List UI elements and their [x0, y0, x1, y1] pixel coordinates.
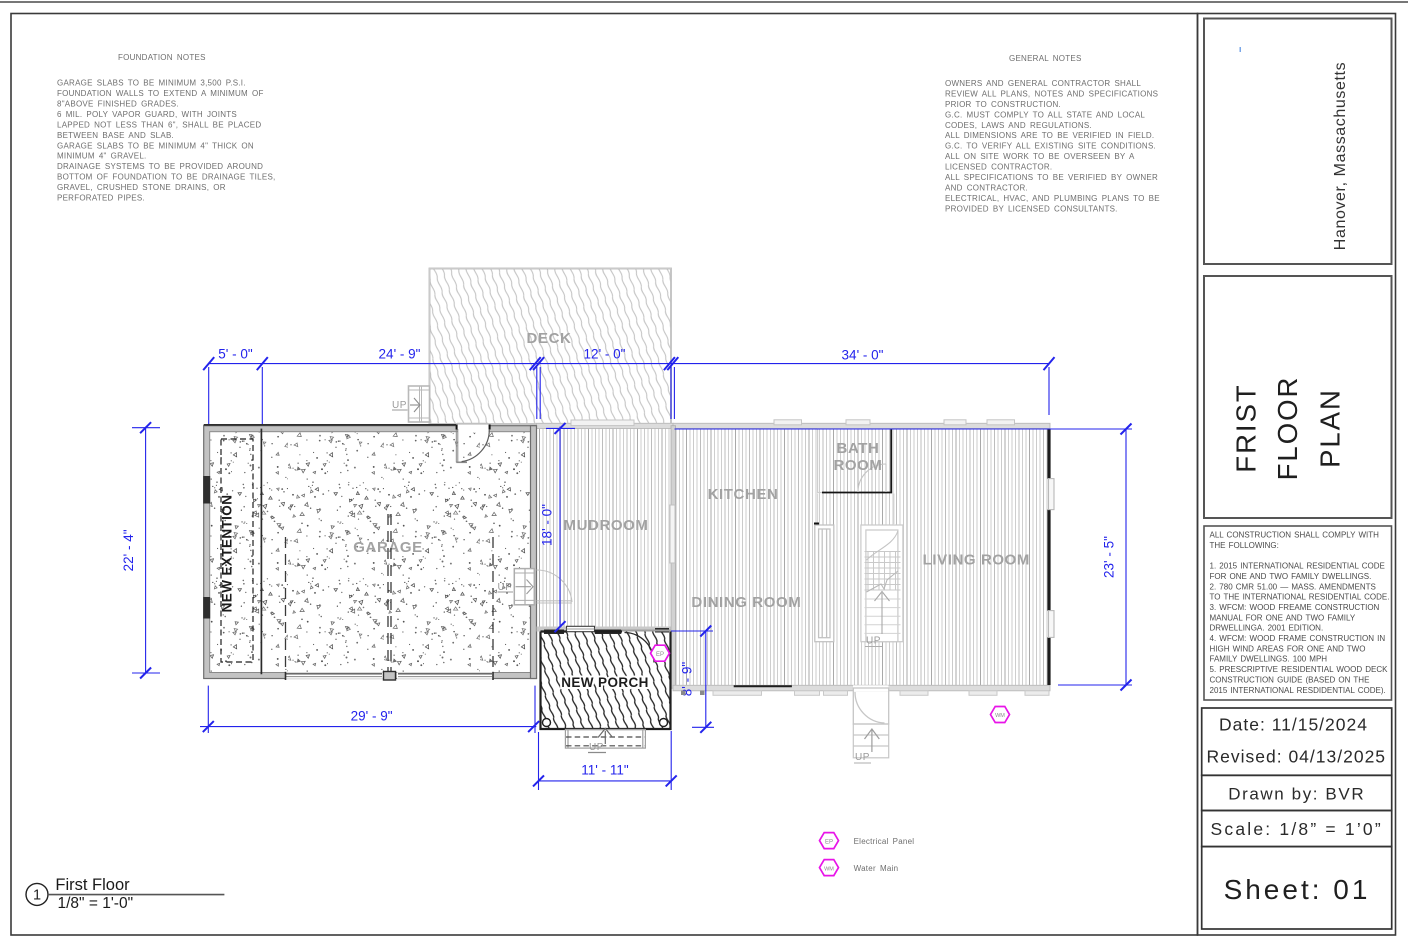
- svg-text:NEW EXTENTION: NEW EXTENTION: [220, 495, 235, 613]
- svg-text:BETWEEN BASE AND SLAB.: BETWEEN BASE AND SLAB.: [57, 131, 174, 140]
- svg-text:3. WFCM: WOOD FREAME CONSTRUCT: 3. WFCM: WOOD FREAME CONSTRUCTION: [1210, 603, 1380, 612]
- svg-text:MANUAL FOR ONE AND TWO FAMILY: MANUAL FOR ONE AND TWO FAMILY: [1210, 613, 1356, 622]
- svg-text:34' - 0": 34' - 0": [842, 348, 884, 363]
- svg-text:22' - 4": 22' - 4": [121, 529, 136, 571]
- svg-text:REVIEW ALL PLANS, NOTES AND SP: REVIEW ALL PLANS, NOTES AND SPECIFICATIO…: [945, 90, 1158, 99]
- svg-text:HIGH WIND AREAS FOR ONE AND TW: HIGH WIND AREAS FOR ONE AND TWO: [1210, 644, 1366, 653]
- svg-text:BATH: BATH: [837, 440, 880, 457]
- svg-text:ELECTRICAL, HVAC, AND PLUMBING: ELECTRICAL, HVAC, AND PLUMBING PLANS TO …: [945, 194, 1160, 203]
- svg-text:G.C. TO VERIFY ALL EXISTING SI: G.C. TO VERIFY ALL EXISTING SITE CONDITI…: [945, 142, 1156, 151]
- svg-text:TO THE INTERNATIONAL RESIDENTI: TO THE INTERNATIONAL RESIDENTIAL CODE.: [1210, 593, 1390, 602]
- svg-text:1: 1: [33, 888, 41, 904]
- svg-text:DECK: DECK: [527, 330, 572, 347]
- svg-text:KITCHEN: KITCHEN: [708, 486, 779, 503]
- svg-text:Scale: 1/8” = 1’0”: Scale: 1/8” = 1’0”: [1211, 819, 1383, 839]
- svg-text:LICENSED CONTRACTOR.: LICENSED CONTRACTOR.: [945, 163, 1052, 172]
- svg-text:12' - 0": 12' - 0": [584, 347, 626, 362]
- svg-text:ALL SPECIFICATIONS TO BE VERIF: ALL SPECIFICATIONS TO BE VERIFIED BY OWN…: [945, 173, 1158, 182]
- svg-text:BOTTOM OF FOUNDATION TO BE DRA: BOTTOM OF FOUNDATION TO BE DRAINAGE TILE…: [57, 173, 276, 182]
- svg-text:UP: UP: [855, 752, 870, 763]
- svg-text:6 MIL. POLY VAPOR GUARD, WITH: 6 MIL. POLY VAPOR GUARD, WITH JOINTS: [57, 110, 237, 119]
- svg-text:PLAN: PLAN: [1315, 388, 1346, 468]
- svg-text:Water Main: Water Main: [854, 864, 899, 873]
- svg-text:1. 2015 INTERNATIONAL RESIDENT: 1. 2015 INTERNATIONAL RESIDENTIAL CODE: [1210, 562, 1385, 571]
- svg-text:Sheet: 01: Sheet: 01: [1224, 874, 1371, 905]
- svg-text:MINIMUM 4" GRAVEL.: MINIMUM 4" GRAVEL.: [57, 152, 147, 161]
- svg-text:DRWELLINGA. 2001 EDITION.: DRWELLINGA. 2001 EDITION.: [1210, 624, 1324, 633]
- svg-text:EP: EP: [825, 840, 833, 846]
- svg-text:UP: UP: [498, 582, 513, 593]
- svg-text:First Floor: First Floor: [55, 876, 130, 894]
- svg-text:2015 INTERNATIONAL RESDIDENTIA: 2015 INTERNATIONAL RESDIDENTIAL CODE).: [1210, 686, 1386, 695]
- svg-text:UP: UP: [589, 742, 604, 753]
- svg-text:8"ABOVE FINISHED GRADES.: 8"ABOVE FINISHED GRADES.: [57, 100, 179, 109]
- svg-text:UP: UP: [392, 400, 407, 411]
- svg-text:FRIST: FRIST: [1231, 383, 1262, 472]
- svg-text:23' - 5": 23' - 5": [1102, 536, 1117, 578]
- svg-text:5' - 0": 5' - 0": [218, 347, 253, 362]
- svg-text:LIVING ROOM: LIVING ROOM: [923, 552, 1030, 569]
- svg-text:FOUNDATION NOTES: FOUNDATION NOTES: [118, 53, 206, 62]
- svg-text:Revised: 04/13/2025: Revised: 04/13/2025: [1207, 747, 1387, 767]
- svg-text:PERFORATED PIPES.: PERFORATED PIPES.: [57, 194, 145, 203]
- svg-text:5. PRESCRIPTIVE RESIDENTIAL WO: 5. PRESCRIPTIVE RESIDENTIAL WOOD DECK: [1210, 665, 1389, 674]
- svg-text:PROVIDED BY LICENSED CONSULTAN: PROVIDED BY LICENSED CONSULTANTS.: [945, 204, 1118, 213]
- svg-text:Electrical Panel: Electrical Panel: [854, 837, 915, 846]
- svg-text:1/8" = 1'-0": 1/8" = 1'-0": [58, 895, 134, 912]
- svg-text:11' - 11": 11' - 11": [581, 763, 629, 778]
- svg-text:Hanover, Massachusetts: Hanover, Massachusetts: [1332, 62, 1349, 250]
- svg-text:CONSTRUCTION GUIDE (BASED ON T: CONSTRUCTION GUIDE (BASED ON THE: [1210, 675, 1370, 684]
- svg-text:LAPPED NOT LESS THAN 6", SHALL: LAPPED NOT LESS THAN 6", SHALL BE PLACED: [57, 120, 261, 129]
- svg-text:FOUNDATION WALLS TO EXTEND A M: FOUNDATION WALLS TO EXTEND A MINIMUM OF: [57, 89, 264, 98]
- svg-text:GARAGE SLABS TO BE MINIMUM 4": GARAGE SLABS TO BE MINIMUM 4" THICK ON: [57, 141, 254, 150]
- svg-text:GRAVEL, CRUSHED STONE DRAINS,: GRAVEL, CRUSHED STONE DRAINS, OR: [57, 183, 226, 192]
- svg-text:ALL CONSTRUCTION SHALL COMPLY: ALL CONSTRUCTION SHALL COMPLY WITH: [1210, 531, 1380, 540]
- svg-text:ALL DIMENSIONS ARE TO BE VERIF: ALL DIMENSIONS ARE TO BE VERIFIED IN FIE…: [945, 131, 1154, 140]
- svg-text:MUDROOM: MUDROOM: [563, 517, 648, 534]
- svg-text:FOR ONE AND TWO FAMILY DWELLIN: FOR ONE AND TWO FAMILY DWELLINGS.: [1210, 572, 1372, 581]
- svg-text:4. WFCM: WOOD FRAME CONSTRUCTI: 4. WFCM: WOOD FRAME CONSTRUCTION IN: [1210, 634, 1386, 643]
- svg-text:Date: 11/15/2024: Date: 11/15/2024: [1219, 715, 1368, 735]
- svg-text:Drawn by: BVR: Drawn by: BVR: [1228, 785, 1365, 804]
- svg-text:FLOOR: FLOOR: [1272, 376, 1303, 481]
- svg-text:FAMILY DWELLINGS. 100 MPH: FAMILY DWELLINGS. 100 MPH: [1210, 655, 1328, 664]
- svg-text:2. 780 CMR 51.00 — MASS. AMEND: 2. 780 CMR 51.00 — MASS. AMENDMENTS: [1210, 582, 1376, 591]
- svg-text:ROOM: ROOM: [833, 457, 882, 474]
- svg-text:OWNERS AND GENERAL CONTRACTOR: OWNERS AND GENERAL CONTRACTOR SHALL: [945, 79, 1141, 88]
- svg-text:WM: WM: [995, 713, 1005, 719]
- svg-text:DINING ROOM: DINING ROOM: [691, 594, 801, 611]
- svg-text:G.C. MUST COMPLY TO ALL STATE: G.C. MUST COMPLY TO ALL STATE AND LOCAL: [945, 110, 1145, 119]
- svg-text:NEW PORCH: NEW PORCH: [561, 675, 649, 690]
- svg-text:GENERAL NOTES: GENERAL NOTES: [1009, 54, 1082, 63]
- svg-text:GARAGE SLABS TO BE MINIMUM 3,5: GARAGE SLABS TO BE MINIMUM 3,500 P.S.I.: [57, 79, 246, 88]
- svg-text:AND CONTRACTOR.: AND CONTRACTOR.: [945, 184, 1028, 193]
- svg-text:THE FOLLOWING:: THE FOLLOWING:: [1210, 541, 1279, 550]
- svg-text:29' - 9": 29' - 9": [351, 709, 393, 724]
- svg-text:EP: EP: [656, 652, 664, 658]
- svg-text:DRAINAGE SYSTEMS TO BE PROVIDE: DRAINAGE SYSTEMS TO BE PROVIDED AROUND: [57, 162, 263, 171]
- svg-text:ALL ON SITE WORK TO BE OVERSEE: ALL ON SITE WORK TO BE OVERSEEN BY A: [945, 152, 1135, 161]
- svg-text:18' - 0": 18' - 0": [540, 504, 555, 546]
- svg-text:CODES, LAWS AND REGULATIONS.: CODES, LAWS AND REGULATIONS.: [945, 121, 1092, 130]
- svg-text:UP: UP: [866, 636, 881, 647]
- svg-text:24' - 9": 24' - 9": [379, 347, 421, 362]
- svg-text:WM: WM: [824, 867, 834, 873]
- svg-text:PRIOR TO CONSTRUCTION.: PRIOR TO CONSTRUCTION.: [945, 100, 1061, 109]
